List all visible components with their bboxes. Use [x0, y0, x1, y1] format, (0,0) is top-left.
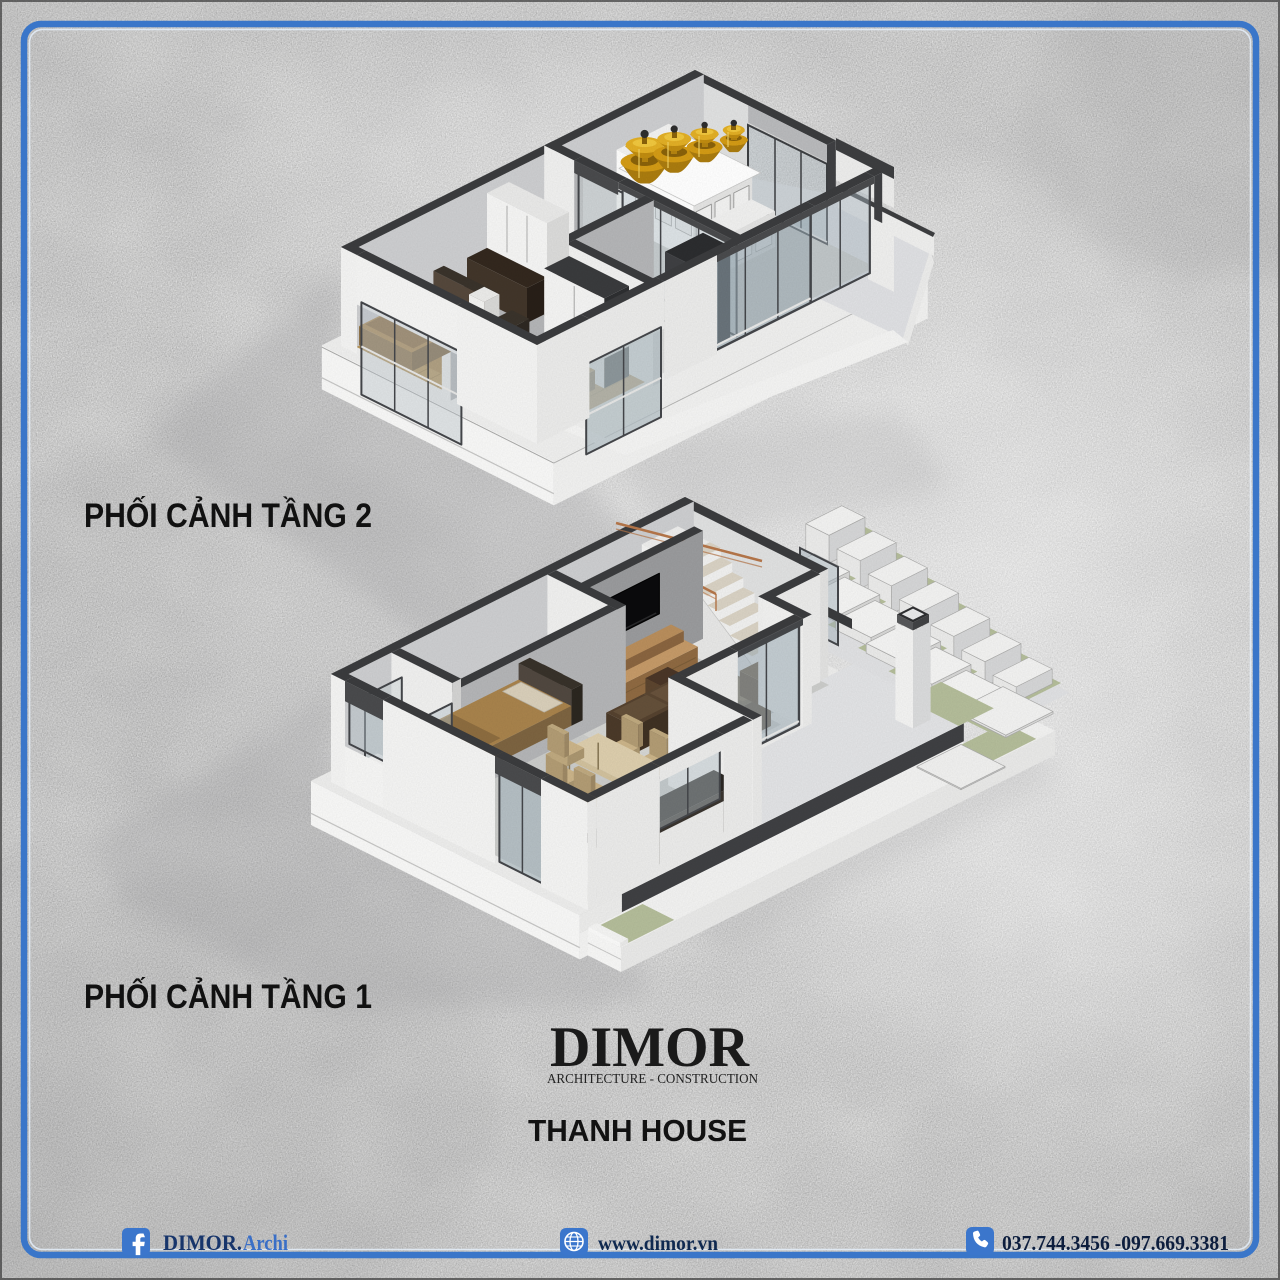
svg-text:DIMOR: DIMOR — [550, 1016, 750, 1079]
svg-text:DIMOR.: DIMOR. — [163, 1230, 242, 1255]
svg-text:www.dimor.vn: www.dimor.vn — [598, 1231, 718, 1255]
svg-text:PHỐI CẢNH TẦNG 1: PHỐI CẢNH TẦNG 1 — [84, 977, 372, 1016]
svg-text:ARCHITECTURE - CONSTRUCTION: ARCHITECTURE - CONSTRUCTION — [547, 1072, 758, 1087]
svg-text:037.744.3456 -097.669.3381: 037.744.3456 -097.669.3381 — [1002, 1231, 1229, 1255]
svg-text:THANH HOUSE: THANH HOUSE — [528, 1114, 747, 1148]
svg-text:Archi: Archi — [243, 1230, 288, 1255]
svg-text:PHỐI CẢNH TẦNG 2: PHỐI CẢNH TẦNG 2 — [84, 496, 372, 535]
